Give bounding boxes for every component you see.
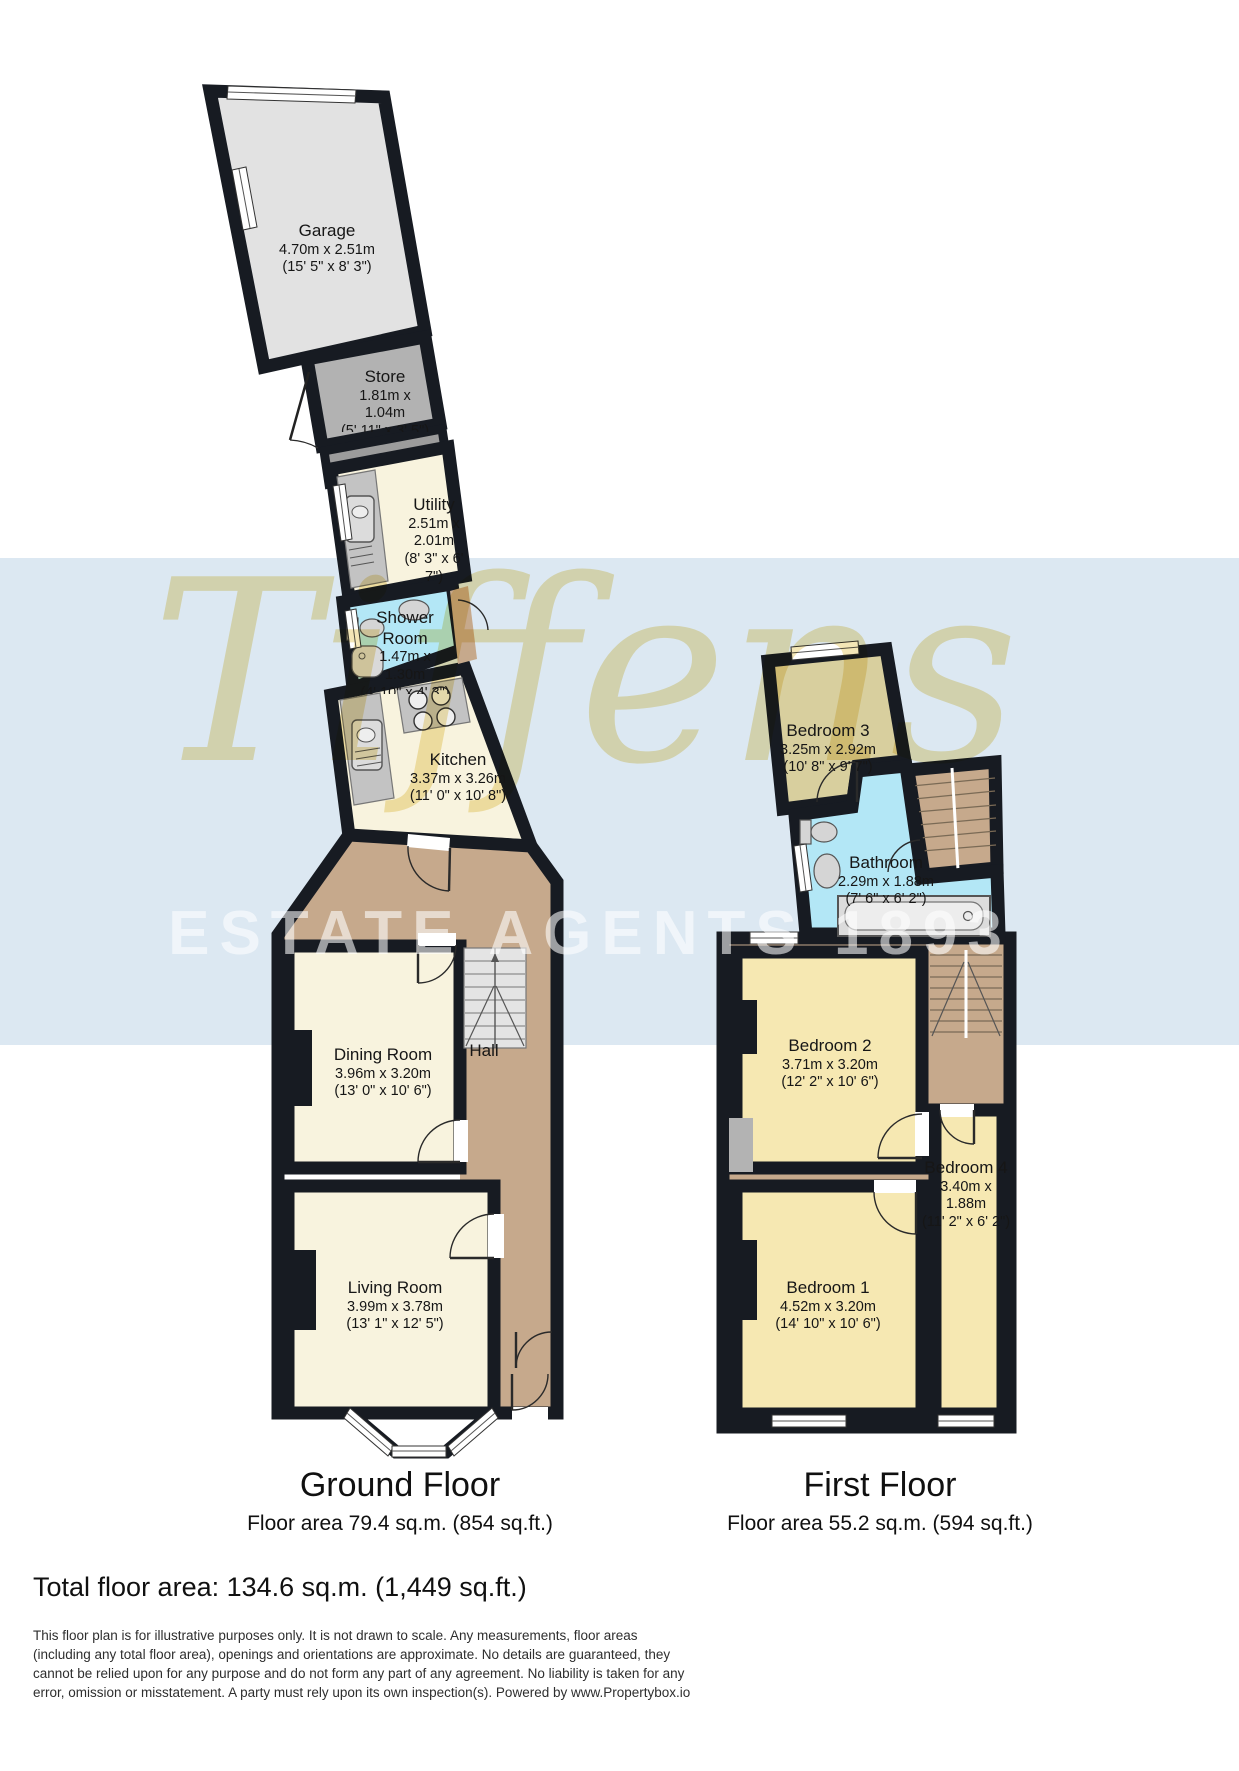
room-label-store: Store 1.81m x 1.04m (5' 11" x 3' 5") <box>341 367 429 432</box>
room-label-bedroom1: Bedroom 1 4.52m x 3.20m (14' 10" x 10' 6… <box>775 1278 880 1334</box>
disclaimer-text: This floor plan is for illustrative purp… <box>33 1626 695 1703</box>
ground-floor-area: Floor area 79.4 sq.m. (854 sq.ft.) <box>247 1512 553 1536</box>
room-label-kitchen: Kitchen 3.37m x 3.26m (11' 0" x 10' 8") <box>410 750 506 806</box>
first-floor-area: Floor area 55.2 sq.m. (594 sq.ft.) <box>727 1512 1033 1536</box>
bedroom4-room <box>935 1110 1003 1414</box>
room-label-utility: Utility 2.51m x 2.01m (8' 3" x 6' 7") <box>404 495 463 586</box>
total-floor-area: Total floor area: 134.6 sq.m. (1,449 sq.… <box>33 1572 527 1603</box>
room-label-garage: Garage 4.70m x 2.51m (15' 5" x 8' 3") <box>279 221 375 277</box>
floorplan-page: Tiffens ESTATE AGENTS 1893 <box>0 0 1239 1771</box>
room-label-bathroom: Bathroom 2.29m x 1.88m (7' 6" x 6' 2") <box>838 853 934 909</box>
basin-icon <box>814 854 840 888</box>
room-label-bedroom2: Bedroom 2 3.71m x 3.20m (12' 2" x 10' 6"… <box>781 1036 878 1092</box>
ground-floor-title: Ground Floor <box>300 1466 500 1505</box>
room-label-living-room: Living Room 3.99m x 3.78m (13' 1" x 12' … <box>346 1278 443 1334</box>
room-label-bedroom4: Bedroom 4 3.40m x 1.88m (11' 2" x 6' 2") <box>922 1158 1010 1232</box>
floor-plan-graphic <box>0 0 1239 1771</box>
toilet-icon <box>811 822 837 842</box>
room-label-bedroom3: Bedroom 3 3.25m x 2.92m (10' 8" x 9' 7") <box>780 721 876 777</box>
staircase-ground <box>464 948 526 1048</box>
room-label-hall: Hall <box>469 1041 498 1062</box>
first-floor-title: First Floor <box>804 1466 957 1505</box>
room-label-dining-room: Dining Room 3.96m x 3.20m (13' 0" x 10' … <box>334 1045 432 1101</box>
room-label-shower-room: Shower Room 1.47m x 1.30m (4' 10" x 4' 3… <box>360 608 449 694</box>
